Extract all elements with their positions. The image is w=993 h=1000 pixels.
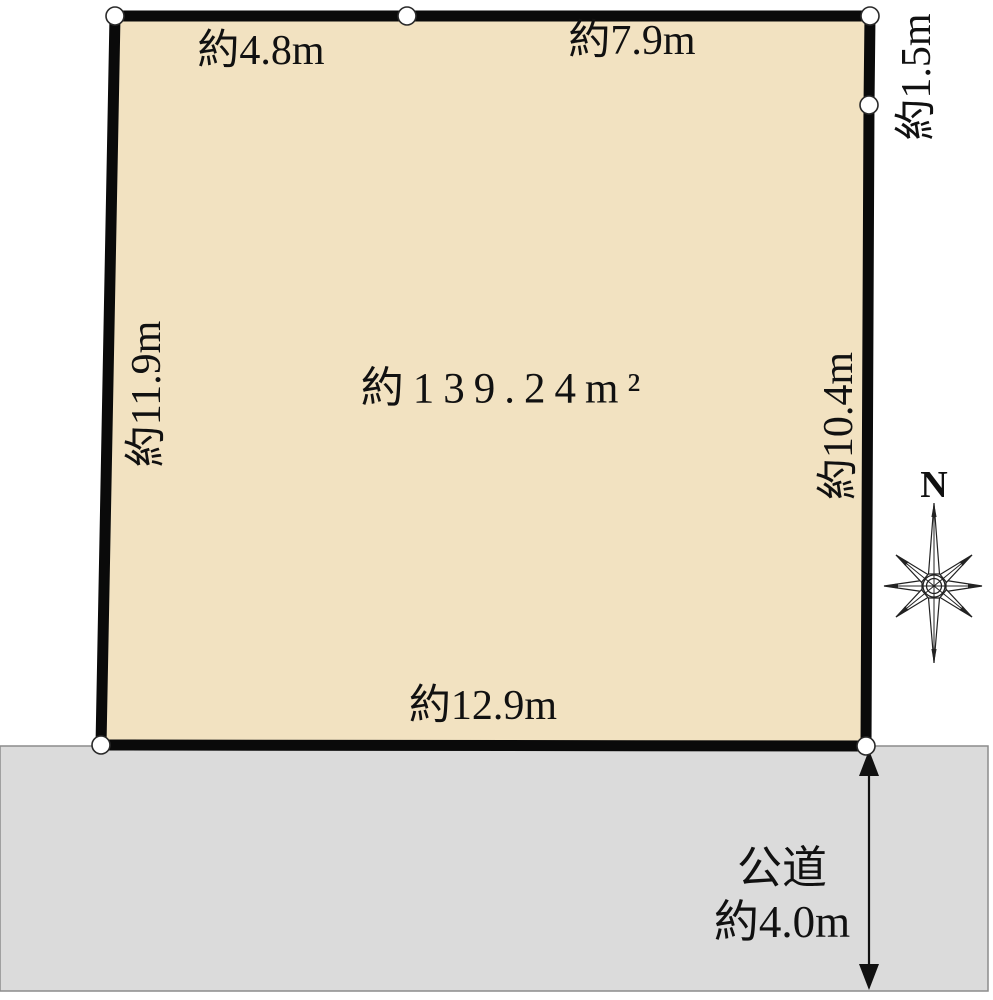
plot-area-label: 約139.24m²: [361, 368, 650, 411]
compass-north-label: N: [920, 466, 947, 504]
vertex-marker: [398, 7, 416, 25]
road-width-label: 約4.0m: [714, 897, 850, 947]
compass-rose-icon: [884, 503, 982, 663]
vertex-marker: [860, 96, 878, 114]
vertex-marker: [857, 737, 875, 755]
dim-label-top-left: 約4.8m: [197, 30, 324, 72]
dim-label-right-lower: 約10.4m: [818, 352, 860, 500]
land-plot-diagram: 約4.8m 約7.9m 約1.5m 約11.9m 約10.4m 約12.9m 約…: [0, 0, 993, 1000]
road-name: 公道: [737, 843, 827, 893]
vertex-marker: [861, 7, 879, 25]
dim-label-bottom: 約12.9m: [409, 685, 557, 727]
dim-label-left: 約11.9m: [126, 321, 168, 468]
road-label: 公道 約4.0m: [652, 841, 912, 949]
vertex-marker: [92, 736, 110, 754]
dim-label-right-upper: 約1.5m: [896, 13, 938, 140]
vertex-marker: [106, 7, 124, 25]
dim-label-top-right: 約7.9m: [568, 20, 695, 62]
